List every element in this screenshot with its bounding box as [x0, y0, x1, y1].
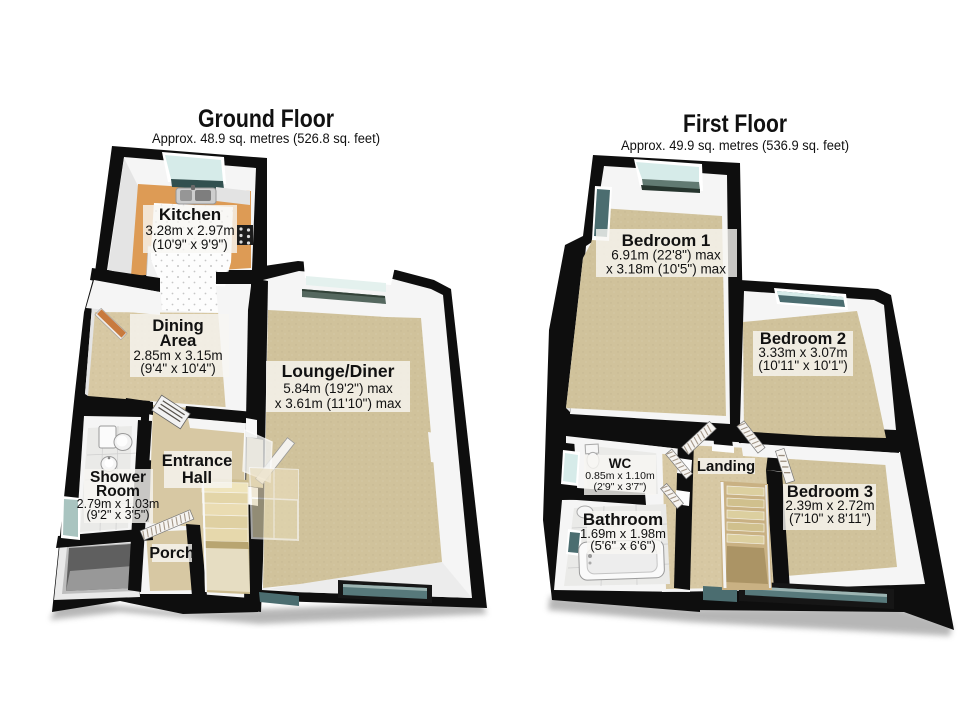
svg-text:(5'6" x 6'6"): (5'6" x 6'6") — [590, 538, 656, 553]
svg-text:Entrance: Entrance — [162, 452, 233, 470]
svg-text:Kitchen: Kitchen — [159, 205, 221, 224]
svg-text:Approx. 49.9 sq. metres (536.9: Approx. 49.9 sq. metres (536.9 sq. feet) — [621, 138, 849, 153]
svg-text:Approx. 48.9 sq. metres (526.8: Approx. 48.9 sq. metres (526.8 sq. feet) — [152, 131, 380, 146]
svg-text:Landing: Landing — [697, 458, 755, 475]
svg-text:(10'11" x 10'1"): (10'11" x 10'1") — [758, 358, 848, 373]
svg-text:6.91m (22'8") max: 6.91m (22'8") max — [611, 248, 721, 263]
svg-text:x 3.18m (10'5") max: x 3.18m (10'5") max — [606, 262, 726, 277]
svg-text:Hall: Hall — [182, 469, 212, 487]
svg-text:First Floor: First Floor — [683, 110, 787, 138]
svg-text:3.28m x 2.97m: 3.28m x 2.97m — [145, 223, 234, 238]
svg-text:(2'9" x 3'7"): (2'9" x 3'7") — [594, 481, 647, 493]
svg-text:5.84m (19'2") max: 5.84m (19'2") max — [283, 381, 393, 396]
svg-text:x 3.61m (11'10") max: x 3.61m (11'10") max — [275, 396, 402, 411]
svg-text:(9'2" x 3'5"): (9'2" x 3'5") — [87, 508, 150, 522]
svg-text:Porch: Porch — [149, 545, 194, 562]
svg-text:Ground Floor: Ground Floor — [198, 105, 334, 133]
svg-text:(9'4" x 10'4"): (9'4" x 10'4") — [140, 361, 216, 376]
svg-text:Lounge/Diner: Lounge/Diner — [282, 361, 395, 381]
svg-text:(10'9" x 9'9"): (10'9" x 9'9") — [152, 237, 228, 252]
svg-text:(7'10" x 8'11"): (7'10" x 8'11") — [789, 511, 871, 526]
svg-text:WC: WC — [609, 456, 632, 471]
